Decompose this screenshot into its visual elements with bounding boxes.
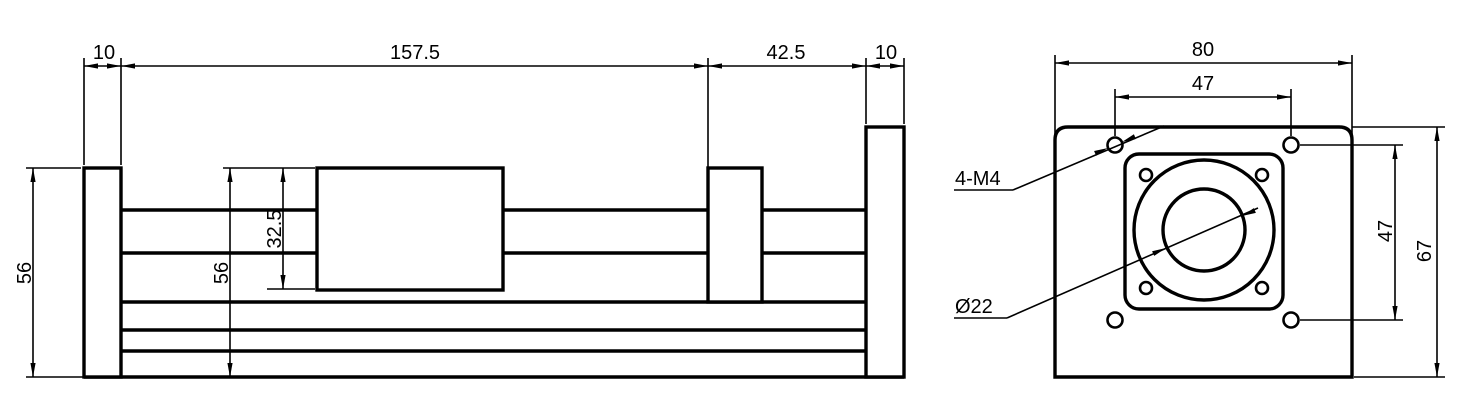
dim-right-plate-label: 10	[875, 42, 897, 64]
slider-carriage	[317, 168, 503, 290]
dim-plate-height-label: 67	[1414, 240, 1436, 262]
dim-hole-spacing-v-label: 47	[1375, 220, 1397, 242]
dim-plate-height: 67	[1352, 127, 1445, 377]
end-plate	[1055, 127, 1352, 377]
dim-motor-section-label: 42.5	[767, 42, 806, 64]
technical-drawing: 10 157.5 42.5 10 56 56 32	[0, 0, 1457, 420]
base-profile-lines	[84, 302, 904, 377]
dim-left-plate-label: 10	[93, 42, 115, 64]
dim-overall-height: 56	[14, 168, 83, 377]
drawing-svg: 10 157.5 42.5 10 56 56 32	[0, 0, 1457, 420]
dim-plate-width-label: 80	[1192, 39, 1214, 61]
dim-hole-spacing-h-label: 47	[1192, 73, 1214, 95]
dim-stroke-length-label: 157.5	[390, 42, 440, 64]
bearing-block	[708, 168, 762, 302]
label-mounting-holes: 4-M4	[955, 168, 1001, 190]
dim-body-height-label: 56	[211, 262, 233, 284]
end-view: 80 47 47 67	[954, 39, 1445, 377]
dim-body-height: 56	[211, 168, 315, 377]
left-end-plate	[84, 168, 121, 377]
motor-mount-plate-side	[866, 127, 904, 377]
dim-carriage-height-label: 32.5	[264, 210, 286, 249]
side-view: 10 157.5 42.5 10 56 56 32	[14, 42, 904, 377]
dim-chain-top: 10 157.5 42.5 10	[84, 42, 904, 167]
label-bore: Ø22	[955, 296, 993, 318]
dim-overall-height-label: 56	[14, 262, 36, 284]
dim-carriage-height: 32.5	[264, 168, 315, 289]
